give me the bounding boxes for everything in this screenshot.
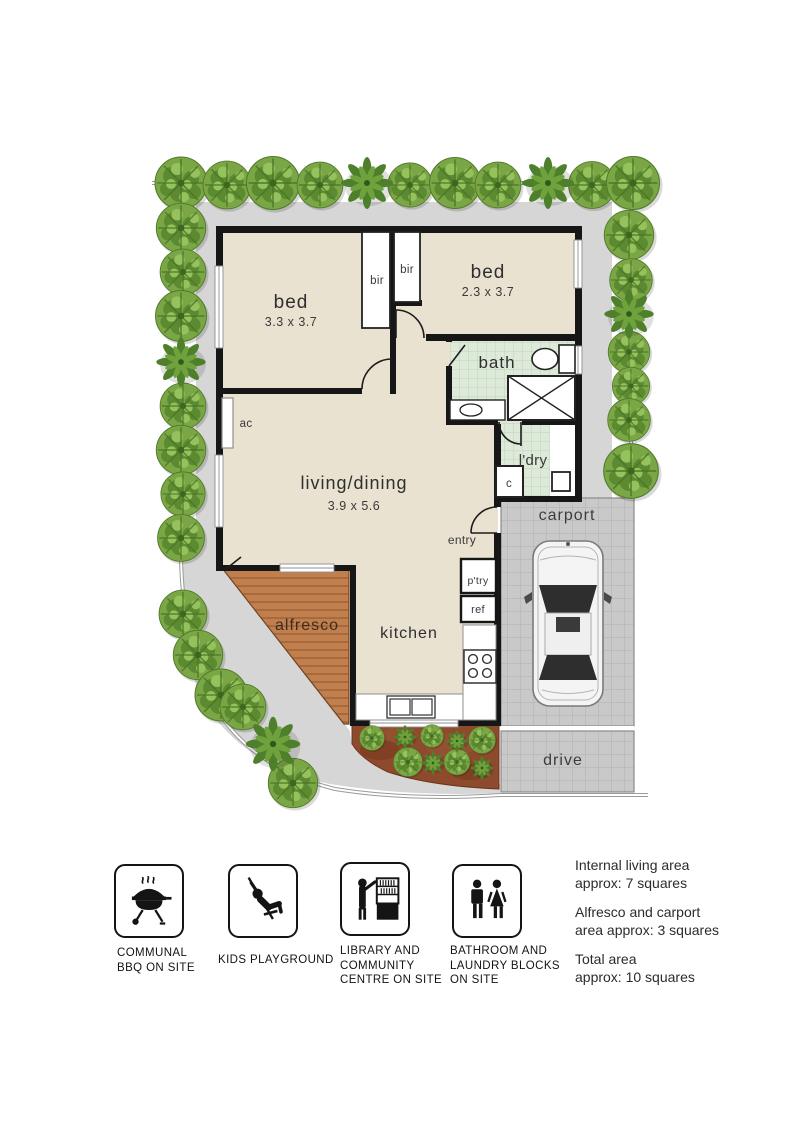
area-internal: Internal living area approx: 7 squares xyxy=(575,856,719,892)
area-summary: Internal living area approx: 7 squares A… xyxy=(575,856,719,997)
ac-label: ac xyxy=(240,418,253,430)
laundry-tub xyxy=(552,472,570,491)
living-label: living/dining xyxy=(300,473,407,493)
drive-label: drive xyxy=(543,752,583,769)
bath-vanity xyxy=(450,400,505,420)
page: { "plan": { "rooms": { "bed1": {"label":… xyxy=(0,0,800,1126)
tree-icon xyxy=(604,444,662,502)
palm-tree-icon xyxy=(156,337,205,386)
area-alfresco-carport: Alfresco and carport area approx: 3 squa… xyxy=(575,903,719,939)
palm-tree-icon xyxy=(604,289,653,338)
palm-tree-icon xyxy=(393,725,416,748)
area-total: Total area approx: 10 squares xyxy=(575,950,719,986)
bbq-icon xyxy=(114,864,184,938)
fridge-label: ref xyxy=(471,604,485,616)
palm-tree-icon xyxy=(446,730,468,752)
car xyxy=(524,541,612,706)
library-icon xyxy=(340,862,410,936)
tree-icon xyxy=(606,156,662,212)
legend-label-bbq: COMMUNAL BBQ ON SITE xyxy=(117,946,195,975)
bir-left-label: bir xyxy=(370,275,384,287)
palm-tree-icon xyxy=(522,157,574,209)
stove xyxy=(464,650,496,683)
floor-plan: bed 3.3 x 3.7 bed 2.3 x 3.7 bir bir bath… xyxy=(0,0,800,830)
palm-tree-icon xyxy=(246,717,301,772)
bir-right-label: bir xyxy=(400,264,414,276)
bed1-label: bed xyxy=(274,292,309,313)
legend-item-bbq xyxy=(114,864,184,938)
bed2-dims: 2.3 x 3.7 xyxy=(462,285,514,299)
legend-item-playground xyxy=(228,864,298,938)
living-dims: 3.9 x 5.6 xyxy=(328,499,380,513)
legend-label-bathroom: BATHROOM AND LAUNDRY BLOCKS ON SITE xyxy=(450,944,560,988)
alfresco-label: alfresco xyxy=(275,617,339,634)
closet-label: c xyxy=(506,478,512,490)
pantry-label: p'try xyxy=(467,575,488,587)
carport-label: carport xyxy=(539,507,596,524)
kitchen-label: kitchen xyxy=(380,625,438,642)
shower xyxy=(508,376,575,420)
legend-label-library: LIBRARY AND COMMUNITY CENTRE ON SITE xyxy=(340,944,442,988)
laundry-label: l'dry xyxy=(519,452,548,469)
bath-label: bath xyxy=(478,353,515,372)
palm-tree-icon xyxy=(341,157,393,209)
bed2-label: bed xyxy=(471,262,506,283)
kids-playground-icon xyxy=(228,864,298,938)
entry-label: entry xyxy=(448,533,476,547)
legend-label-playground: KIDS PLAYGROUND xyxy=(218,953,334,968)
legend-item-bathroom xyxy=(452,864,522,938)
kitchen-sink xyxy=(387,696,435,718)
palm-tree-icon xyxy=(421,751,444,774)
tree-icon xyxy=(608,399,653,444)
legend-item-library xyxy=(340,862,410,936)
ac-unit xyxy=(222,398,233,448)
palm-tree-icon xyxy=(470,756,493,779)
bed1-dims: 3.3 x 3.7 xyxy=(265,315,317,329)
bathroom-laundry-icon xyxy=(452,864,522,938)
tree-icon xyxy=(604,210,656,262)
